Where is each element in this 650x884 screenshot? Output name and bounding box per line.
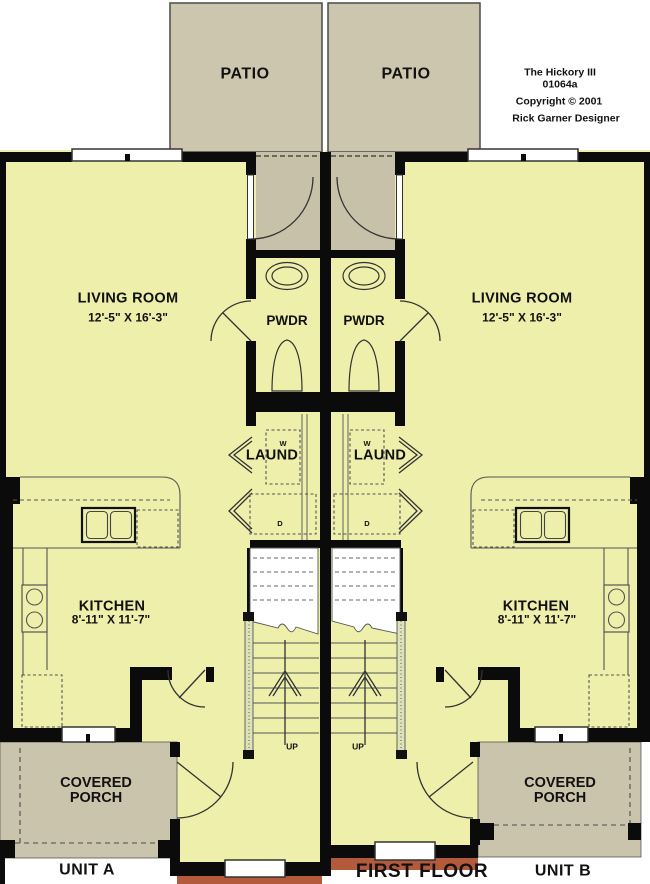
unit-b-label: UNIT B [535,864,591,881]
floor-plan: PATIO PATIO The Hickory III 01064a Copyr… [0,0,650,884]
laund-a-label: LAUND [246,448,298,463]
washer-b-label: W [363,440,370,448]
dryer-a-label: D [277,520,282,528]
porch-a-label: COVERED PORCH [46,776,146,806]
plan-copyright: Copyright © 2001 [516,96,603,107]
plan-designer: Rick Garner Designer [512,113,619,124]
rear-door-b-leaf [397,175,403,239]
stair-b-upper-flight [332,548,400,634]
vestibule-a [256,152,320,250]
vestibule-b [331,152,395,250]
kitchen-b-sink [516,508,569,542]
unit-a-label: UNIT A [59,863,115,880]
porch-b-label: COVERED PORCH [510,776,610,806]
living-b-dims: 12'-5" X 16'-3" [482,312,562,325]
stair-a-handrail [245,618,253,753]
pwdr-a-label: PWDR [266,314,307,328]
living-a-dims: 12'-5" X 16'-3" [88,312,168,325]
foyer-a-window [225,860,285,877]
kitchen-a-range [22,585,47,632]
patio-a-label: PATIO [220,67,269,84]
first-floor-label: FIRST FLOOR [356,862,488,882]
patio-b-label: PATIO [381,67,430,84]
party-wall [320,152,331,876]
foyer-b-window [375,842,435,860]
kitchen-a-sink [82,508,135,542]
plan-title: The Hickory III [524,67,596,78]
pwdr-b-label: PWDR [343,314,384,328]
floor-plan-drawing [0,0,650,884]
kitchen-b-range [604,585,629,632]
patios [170,3,480,152]
rear-door-a-leaf [248,175,254,239]
dryer-b-label: D [364,520,369,528]
plan-number: 01064a [542,79,577,90]
kitchen-a-dims: 8'-11" X 11'-7" [72,614,150,627]
washer-a-label: W [279,440,286,448]
up-b-label: UP [352,743,364,752]
laund-b-label: LAUND [354,448,406,463]
stair-a-upper-flight [250,548,318,634]
up-a-label: UP [286,743,298,752]
living-b-label: LIVING ROOM [472,291,573,306]
kitchen-b-dims: 8'-11" X 11'-7" [498,614,576,627]
living-a-label: LIVING ROOM [78,291,179,306]
stair-b-handrail [397,618,405,753]
